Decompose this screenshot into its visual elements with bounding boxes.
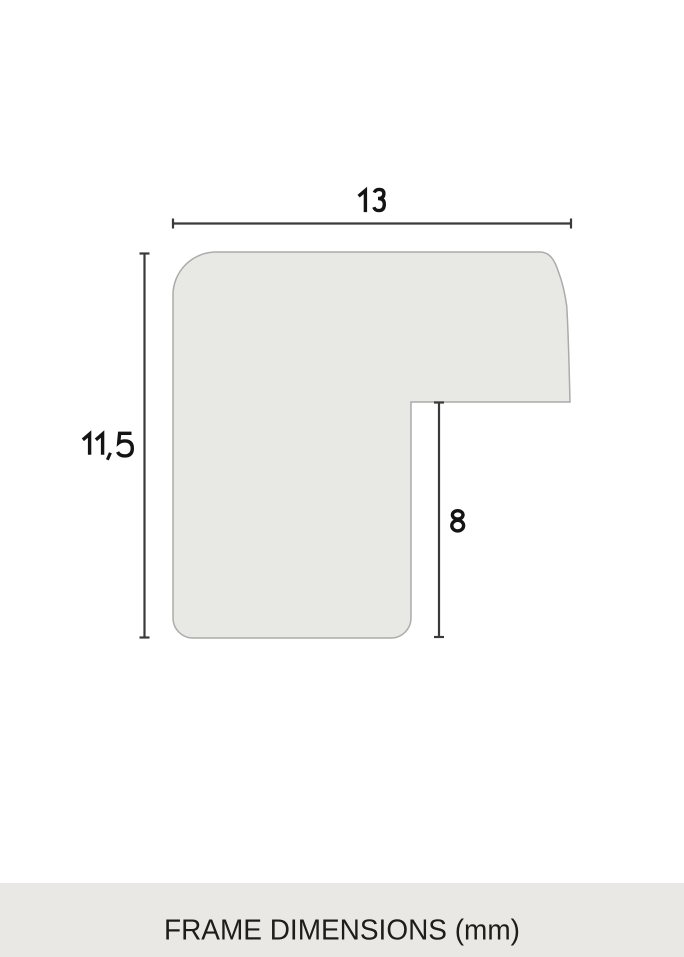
svg-text:FRAME DIMENSIONS (mm): FRAME DIMENSIONS (mm) [164,915,520,947]
